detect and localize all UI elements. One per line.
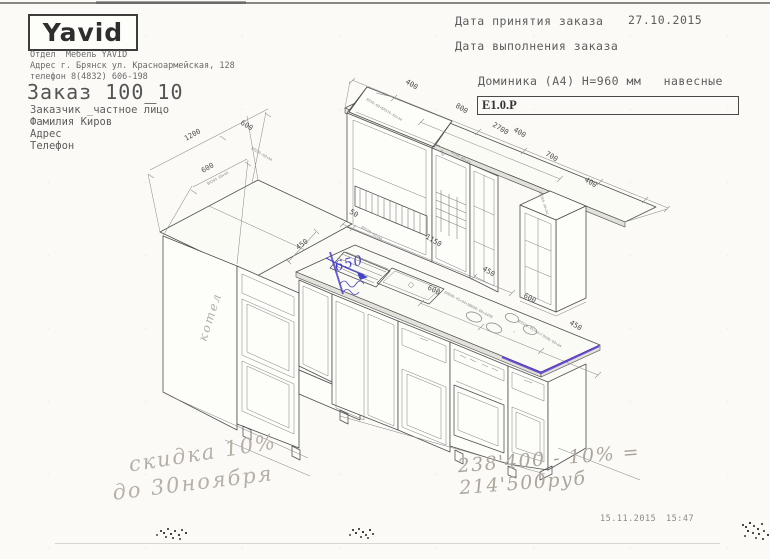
scan-smudge-right [742,524,744,526]
dim-label: 800 [454,101,470,115]
print-date-stamp: 15.11.2015 [600,514,656,524]
dim-label: 400 [404,77,420,91]
dim-label: 400 [512,125,528,139]
dim-label: 450 [568,318,584,332]
scan-bottom-line [55,543,720,544]
scanned-order-sheet: { "document": { "logo": "Yavid", "header… [0,0,770,559]
dim-label: 1200 [183,126,203,142]
dim-label: 700 [544,149,560,163]
code-label: ! [513,330,515,334]
dim-label: 600 [200,161,216,175]
dim-label: 2700 [491,120,510,137]
print-time-stamp: 15:47 [666,514,694,524]
scan-smudge-left [160,530,162,532]
scan-smudge-center [352,529,354,531]
dim-label: 600 [239,118,255,132]
